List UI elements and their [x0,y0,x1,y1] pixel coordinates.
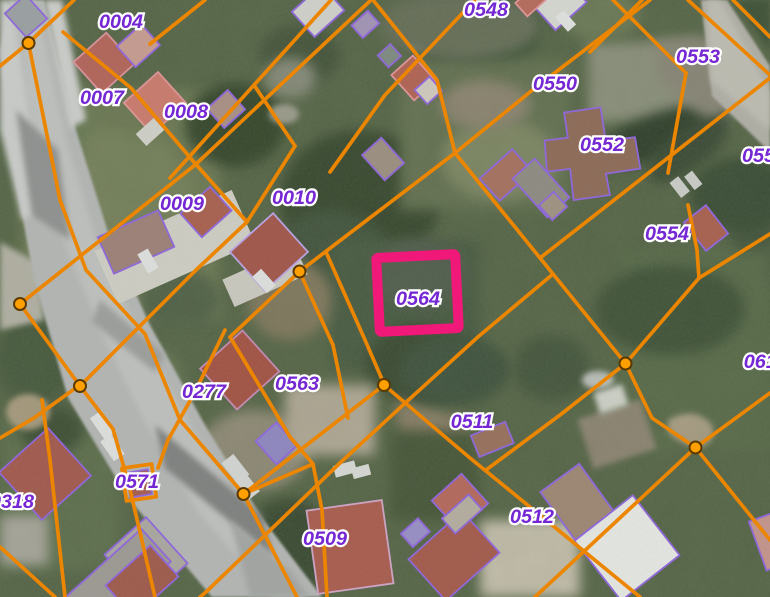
svg-text:0009: 0009 [160,193,204,215]
svg-text:0611: 0611 [744,351,770,373]
svg-text:0548: 0548 [464,0,508,21]
svg-text:0550: 0550 [533,73,577,95]
svg-text:0552: 0552 [580,134,624,156]
svg-text:0007: 0007 [80,87,125,109]
svg-text:0564: 0564 [396,288,440,310]
svg-text:0277: 0277 [182,381,227,403]
svg-text:0008: 0008 [164,101,208,123]
svg-text:0553: 0553 [676,46,720,68]
svg-text:0512: 0512 [510,506,554,528]
svg-text:0563: 0563 [275,373,319,395]
svg-text:0318: 0318 [0,491,34,513]
svg-text:0004: 0004 [99,11,143,33]
svg-text:0010: 0010 [272,187,316,209]
svg-text:0509: 0509 [303,528,347,550]
svg-text:0555: 0555 [742,145,770,167]
svg-text:0554: 0554 [645,223,689,245]
svg-text:0571: 0571 [115,471,159,493]
svg-text:0511: 0511 [451,411,494,433]
